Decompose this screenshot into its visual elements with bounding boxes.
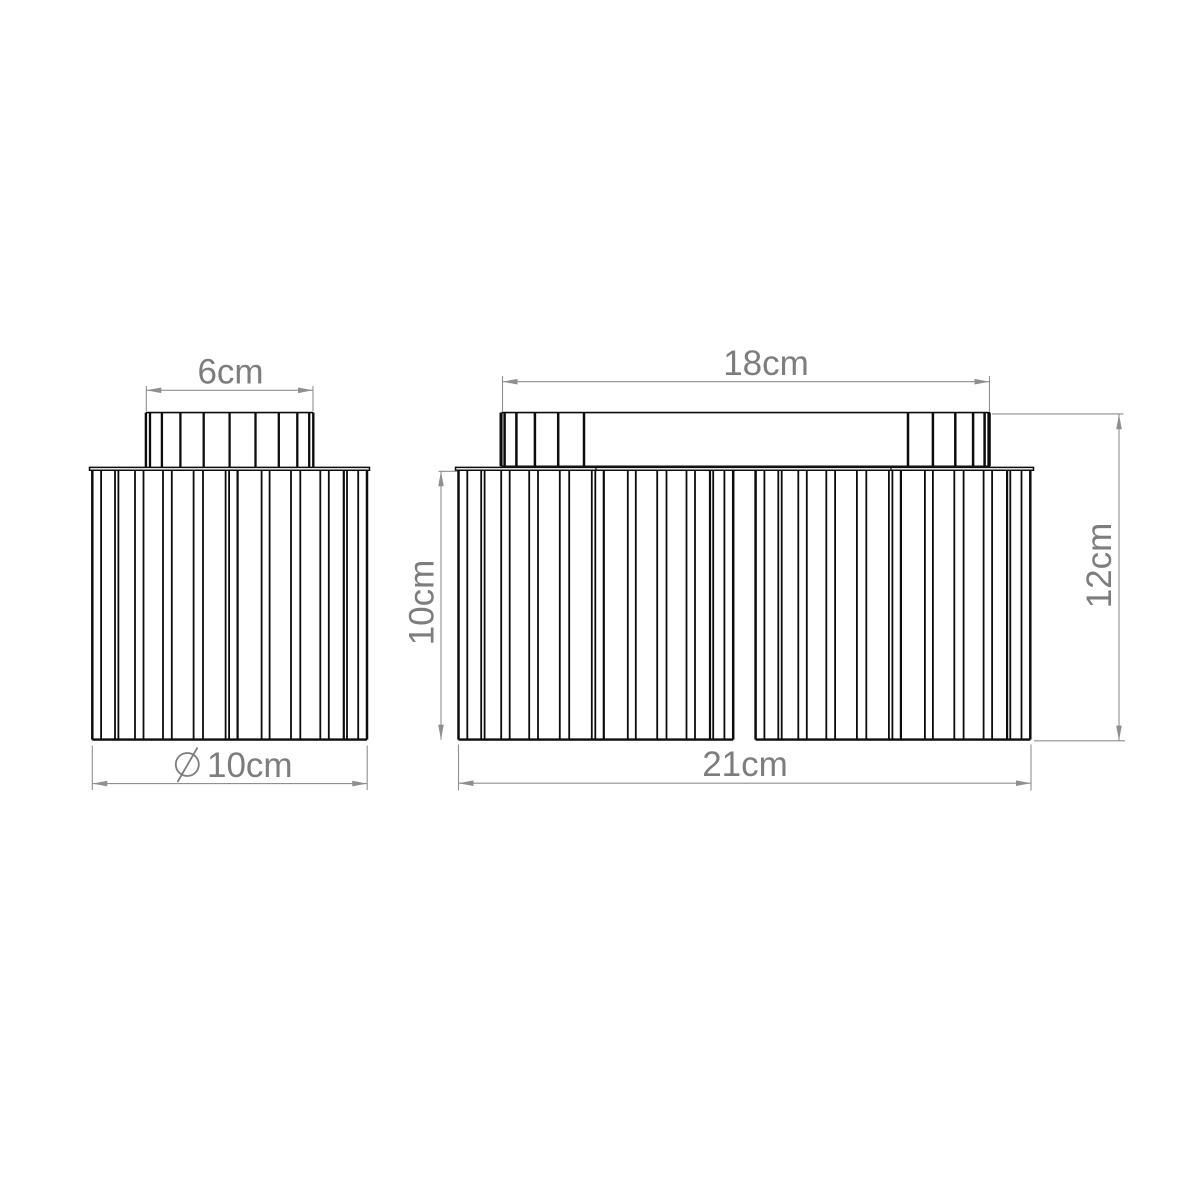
svg-text:10cm: 10cm [207,746,293,785]
svg-text:10cm: 10cm [403,560,442,646]
svg-text:18cm: 18cm [723,344,809,383]
svg-text:12cm: 12cm [1080,523,1119,609]
svg-text:6cm: 6cm [197,352,263,391]
svg-text:21cm: 21cm [702,745,788,784]
